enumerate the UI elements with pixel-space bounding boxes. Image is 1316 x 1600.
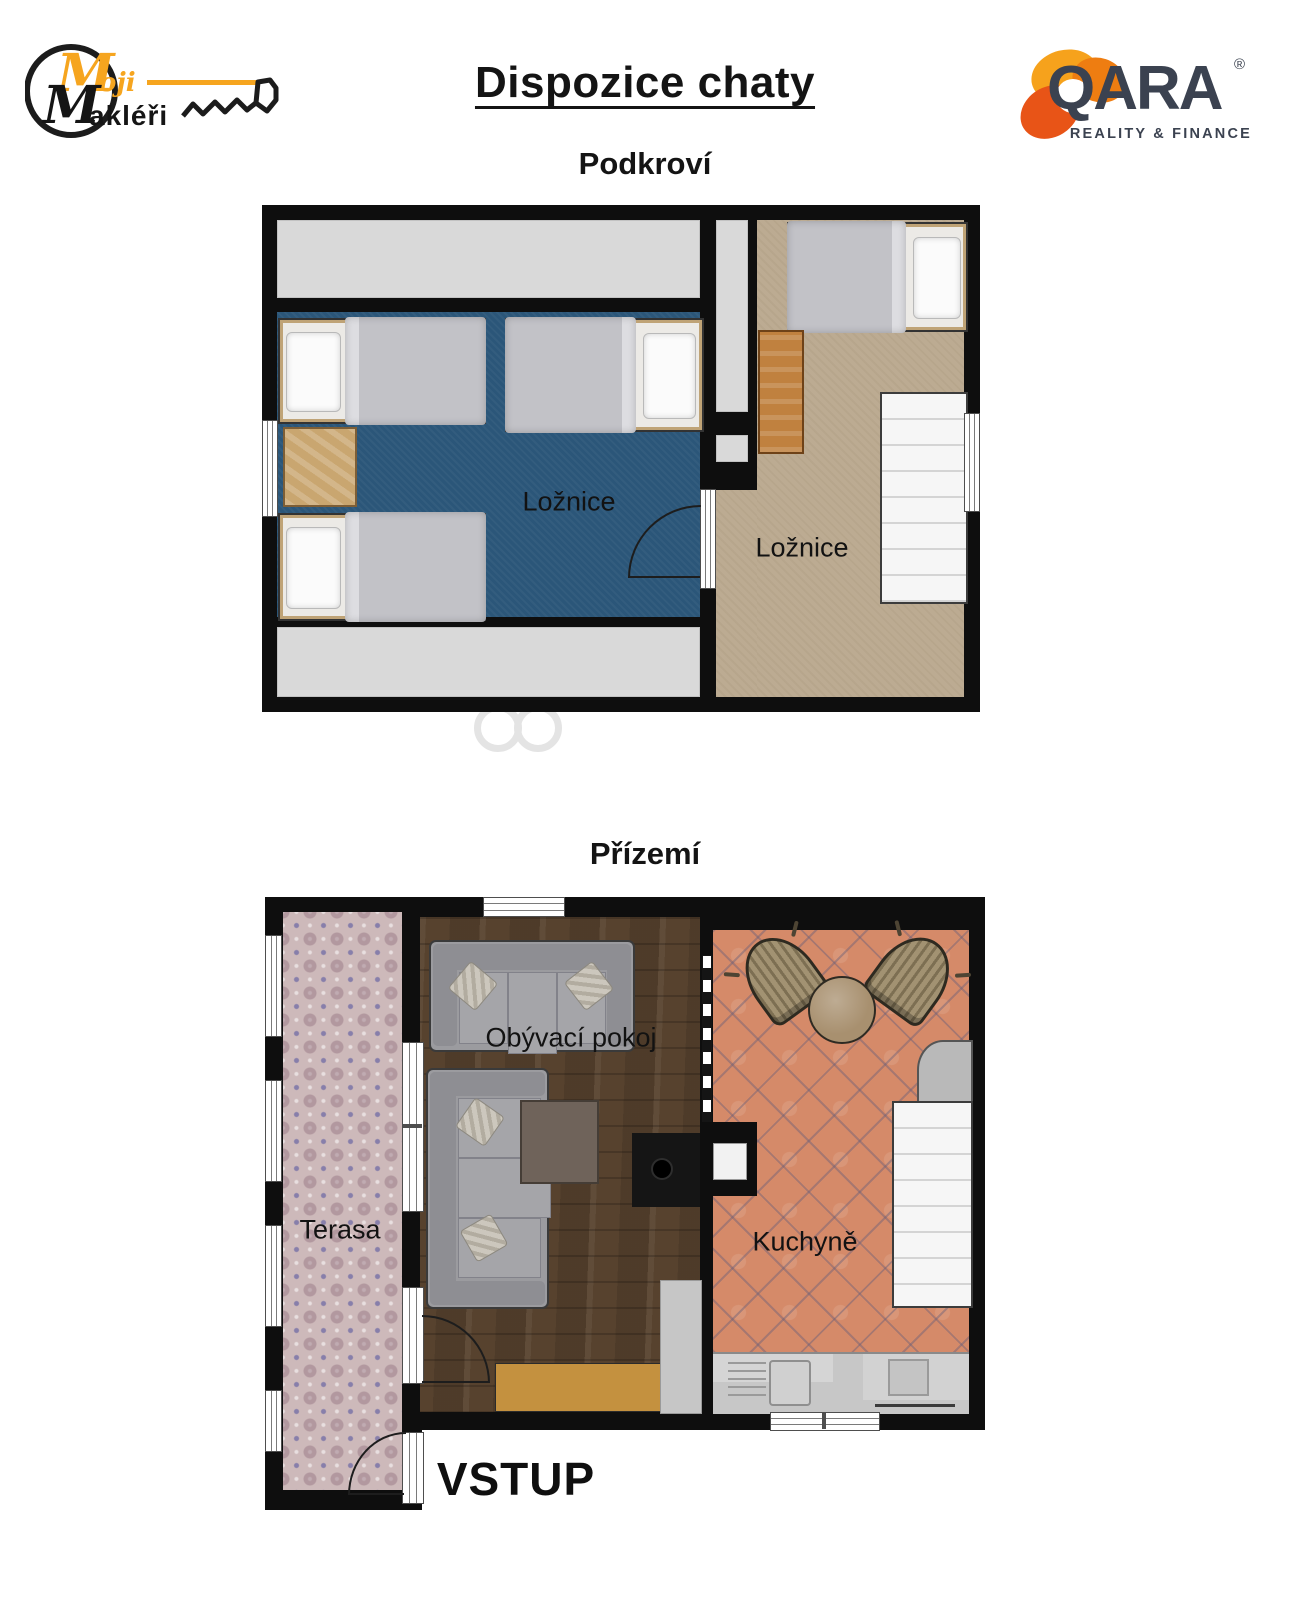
terrace-window [265,935,282,1037]
ground-plan: Obývací pokoj Kuchyně Terasa VSTUP [265,897,985,1510]
logo-script-top: oji [99,68,136,98]
attic-stairs [880,392,968,604]
attic-door-frame [700,489,716,589]
window-mullion [402,1124,422,1128]
single-bed [278,513,486,621]
cooktop [888,1359,929,1396]
wood-stove [632,1133,700,1207]
page-title: Dispozice chaty [345,58,945,108]
living-room-top-window [483,897,565,917]
terrace-living-door-frame [402,1287,424,1384]
registered-mark: ® [1234,56,1245,73]
key-teeth-icon [183,100,257,116]
bedroom-right-label: Ložnice [755,533,848,564]
living-door-leaf [422,1381,488,1383]
single-bed [278,318,486,424]
terrace-label: Terasa [299,1215,380,1246]
key-bow-icon [256,80,276,111]
attic-floor-title: Podkroví [345,146,945,182]
attic-window-left [262,420,278,517]
desk [758,330,804,454]
kitchen-stairs [892,1101,973,1308]
qara-logo: QARA ® REALITY & FINANCE [1005,40,1265,152]
terrace-window [265,1390,282,1452]
stair-landing [917,1040,973,1105]
kitchen-counter [713,1352,969,1414]
living-room-label: Obývací pokoj [485,1023,656,1054]
stove-flue [653,1160,671,1178]
single-bed [787,222,968,332]
ground-floor-title: Přízemí [345,836,945,872]
bedroom-left-label: Ložnice [522,487,615,518]
bed-pillow [913,237,961,320]
rug [495,1363,674,1412]
bed-blanket [345,317,486,425]
kitchen-label: Kuchyně [752,1227,857,1258]
coffee-table [520,1100,599,1184]
bed-blanket [787,221,906,333]
attic-wall-niche [716,435,748,462]
nightstand [283,427,357,507]
terrace-floor [283,912,402,1490]
bed-blanket [505,317,636,434]
side-cabinet [660,1280,702,1414]
round-dining-table [808,976,876,1044]
attic-void-top [277,220,700,298]
key-shaft-icon [147,80,260,85]
attic-void-strip [716,220,748,412]
attic-window-right [964,413,980,512]
open-passage-divider [702,955,712,1124]
floorplan-page: M oji M akléři Dispozice chaty Podkroví … [0,0,1316,1600]
attic-plan: Ložnice Ložnice [262,205,980,712]
window-mullion [822,1412,826,1429]
attic-void-bottom [277,627,700,697]
entrance-label: VSTUP [437,1452,595,1506]
sink-basin [769,1360,811,1406]
qara-brand-text: QARA [1047,58,1222,120]
bed-pillow [286,527,341,608]
bed-blanket [345,512,486,622]
bedroom-right-floor-ext [716,490,757,697]
moji-makleri-logo: M oji M akléři [25,38,280,146]
entry-door-leaf [348,1493,404,1495]
sink-drainer [728,1362,766,1400]
single-bed [505,318,704,432]
wall-niche [713,1143,747,1180]
oven-handle [875,1404,955,1407]
bed-pillow [286,332,341,412]
qara-tagline: REALITY & FINANCE [1040,126,1252,142]
terrace-window [265,1080,282,1182]
terrace-window [265,1225,282,1327]
attic-door-leaf [628,576,700,578]
logo-script-bottom: akléři [89,100,168,132]
bed-pillow [643,333,696,419]
